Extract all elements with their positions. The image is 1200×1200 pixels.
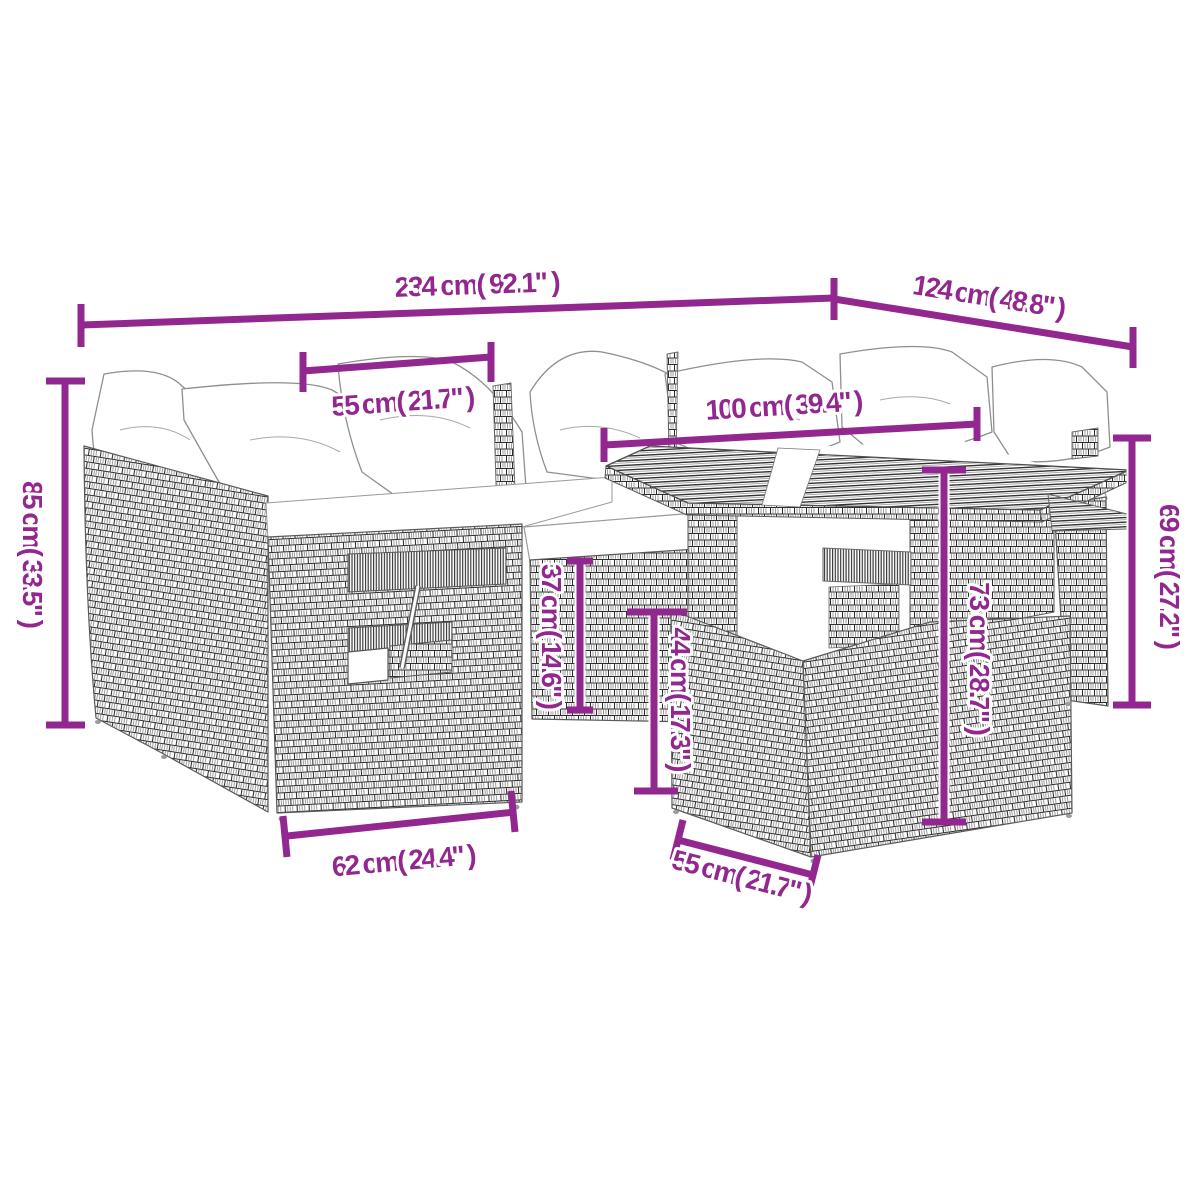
svg-text:44 cm( 17.3" ): 44 cm( 17.3" ) bbox=[665, 628, 696, 773]
svg-text:234 cm( 92.1" ): 234 cm( 92.1" ) bbox=[394, 266, 561, 303]
svg-text:85 cm( 33.5" ): 85 cm( 33.5" ) bbox=[17, 481, 48, 629]
svg-text:37 cm( 14.6" ): 37 cm( 14.6" ) bbox=[536, 564, 567, 710]
svg-text:73 cm( 28.7" ): 73 cm( 28.7" ) bbox=[964, 582, 995, 736]
svg-text:69 cm( 27.2" ): 69 cm( 27.2" ) bbox=[1154, 504, 1185, 650]
